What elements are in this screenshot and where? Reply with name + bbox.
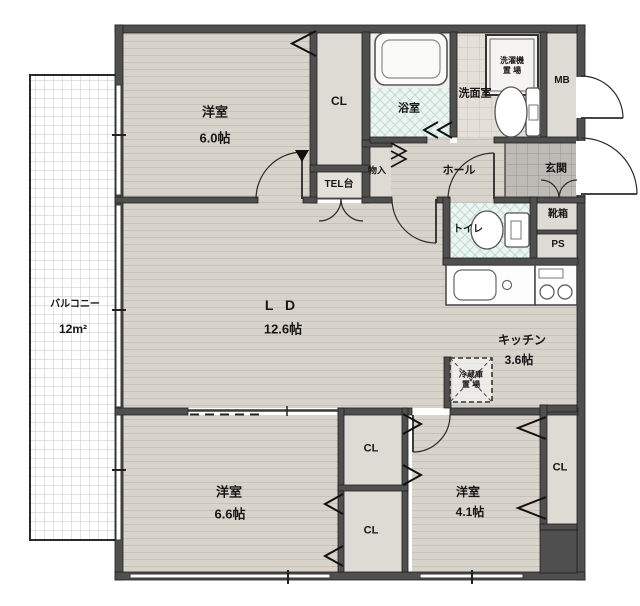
toilet-label: トイレ [453, 225, 483, 235]
window-bottom-1 [130, 574, 330, 578]
wall-corner-block [540, 530, 577, 573]
closet-mid-lower-label: CL [364, 526, 379, 537]
window-left-3 [116, 415, 121, 540]
wall-clmid-divider [338, 485, 408, 491]
living-dining-label: L D [265, 298, 299, 312]
bedroom1-size: 6.0帖 [199, 132, 230, 145]
closet-top-label: CL [331, 95, 347, 107]
washbasin [495, 87, 540, 137]
living-dining-size: 12.6帖 [264, 323, 302, 336]
wall-clmid-top [338, 408, 412, 415]
hall-label: ホール [443, 166, 476, 177]
washroom-doorway [457, 137, 494, 143]
storage-label: 物入 [368, 167, 386, 176]
entrance-door-opening [576, 141, 586, 195]
kitchen-label: キッチン [498, 334, 546, 346]
closet-right-label: CL [553, 463, 568, 474]
floor-plan: 洋室 6.0帖 CL 浴室 洗面室 洗濯機 置 場 MB 玄関 靴箱 PS トイ… [0, 0, 640, 606]
door-meter-box [581, 76, 623, 118]
wall-b1-cl [310, 32, 317, 203]
laundry-line1: 洗濯機 [500, 56, 524, 66]
balcony-label: バルコニー [50, 300, 100, 310]
tel-stand-label: TEL台 [325, 180, 354, 190]
shoe-box-label: 靴箱 [548, 210, 568, 220]
bedroom2-label: 洋室 [216, 486, 242, 499]
fridge-line2: 置 場 [462, 380, 480, 390]
kitchen-sink [446, 265, 535, 305]
wall-toilet-right [530, 197, 537, 265]
wall-mid-1 [115, 197, 258, 203]
mb-door-opening [576, 77, 586, 118]
bathtub [375, 33, 447, 85]
toilet-doorway [450, 197, 494, 203]
washroom-label: 洗面室 [459, 89, 492, 100]
bedroom1-label: 洋室 [202, 106, 228, 119]
wall-toilet-left [443, 197, 450, 265]
wall-shoebox-ps [537, 230, 577, 234]
window-left-1 [116, 85, 121, 195]
bath-label: 浴室 [398, 104, 420, 115]
bath-doorway [427, 137, 450, 143]
wall-entry-top [494, 137, 578, 143]
bedroom3-label: 洋室 [456, 486, 480, 498]
door-entrance [581, 138, 637, 194]
bedroom3-size: 4.1帖 [456, 506, 485, 518]
wall-wash-mb [540, 32, 547, 143]
window-left-2 [116, 205, 121, 407]
wall-mid-5 [494, 197, 585, 203]
entrance-label: 玄関 [545, 164, 567, 175]
stove [535, 265, 577, 305]
wall-mid-3 [362, 197, 392, 203]
fridge-space-label: 冷蔵庫 置 場 [452, 361, 490, 399]
wall-clright-bottom [540, 524, 577, 530]
wall-mid-2 [303, 197, 317, 203]
laundry-space-label: 洗濯機 置 場 [488, 41, 536, 91]
wall-bath-wash [450, 32, 457, 137]
closet-mid-upper-label: CL [364, 444, 379, 455]
wall-ld-b2 [115, 408, 188, 415]
wall-cl-bath [362, 32, 370, 203]
balcony-size: 12m² [59, 323, 87, 335]
fridge-line1: 冷蔵庫 [459, 370, 483, 380]
wall-b3-clright [540, 405, 547, 530]
meter-box-label: MB [554, 76, 570, 86]
ld-doorway [392, 197, 437, 203]
bedroom1-doorway [258, 197, 303, 203]
laundry-line2: 置 場 [503, 66, 521, 76]
kitchen-size: 3.6帖 [505, 354, 534, 366]
pipe-space-label: PS [551, 240, 564, 250]
bedroom2-size: 6.6帖 [214, 508, 245, 521]
wall-bath-bottom [370, 137, 427, 143]
wall-top [115, 25, 585, 33]
wall-cl-bottom [310, 165, 370, 172]
wall-toilet-bottom [443, 258, 578, 265]
